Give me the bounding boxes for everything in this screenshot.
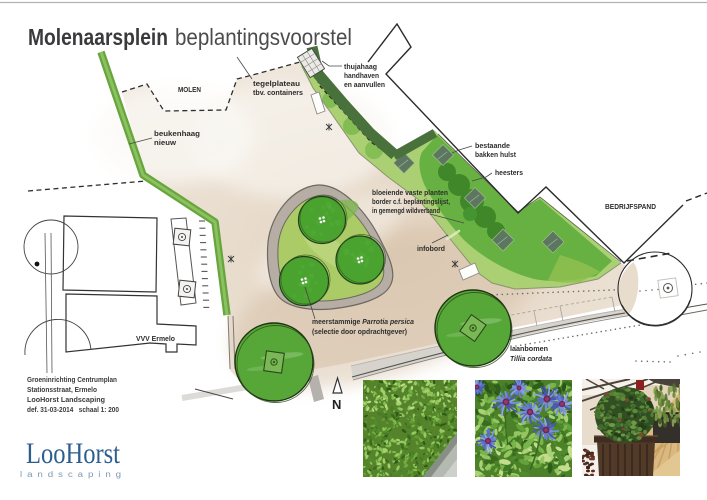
svg-text:(selectie door opdrachtgever): (selectie door opdrachtgever) [312, 327, 408, 336]
svg-text:N: N [332, 397, 341, 412]
svg-text:tegelplateau: tegelplateau [253, 79, 300, 88]
svg-text:Groeninrichting Centrumplan: Groeninrichting Centrumplan [27, 375, 117, 384]
svg-text:in gemengd wildverband: in gemengd wildverband [372, 206, 440, 215]
svg-text:def. 31-03-2014 schaal 1: 20: def. 31-03-2014 schaal 1: 200 [27, 405, 119, 414]
svg-text:nieuw: nieuw [154, 138, 176, 147]
svg-text:laanbomen: laanbomen [510, 344, 548, 353]
svg-text:landscaping: landscaping [20, 470, 126, 479]
svg-text:Tillia cordata: Tillia cordata [510, 354, 552, 363]
svg-text:beukenhaag: beukenhaag [154, 129, 200, 138]
svg-text:MOLEN: MOLEN [178, 85, 201, 94]
svg-text:meerstammige Parrotia persica: meerstammige Parrotia persica [312, 317, 414, 326]
svg-text:heesters: heesters [495, 168, 523, 177]
svg-text:handhaven: handhaven [344, 71, 379, 80]
svg-text:thujahaag: thujahaag [344, 62, 377, 71]
svg-text:BEDRIJFSPAND: BEDRIJFSPAND [605, 202, 656, 211]
svg-text:VVV Ermelo: VVV Ermelo [136, 334, 176, 343]
svg-text:LooHorst: LooHorst [26, 437, 121, 470]
svg-text:bloeiende vaste planten: bloeiende vaste planten [372, 188, 448, 197]
svg-text:infobord: infobord [417, 244, 445, 253]
svg-text:tbv. containers: tbv. containers [253, 88, 303, 97]
svg-text:LooHorst Landscaping: LooHorst Landscaping [27, 395, 105, 404]
svg-text:bestaande: bestaande [475, 141, 510, 150]
svg-text:Stationsstraat, Ermelo: Stationsstraat, Ermelo [27, 385, 97, 394]
svg-text:border c.f. beplantingslijst,: border c.f. beplantingslijst, [372, 197, 450, 206]
svg-text:bakken hulst: bakken hulst [475, 150, 517, 159]
svg-text:beplantingsvoorstel: beplantingsvoorstel [175, 24, 352, 50]
svg-text:en aanvullen: en aanvullen [344, 80, 385, 89]
svg-text:Molenaarsplein: Molenaarsplein [28, 24, 168, 50]
